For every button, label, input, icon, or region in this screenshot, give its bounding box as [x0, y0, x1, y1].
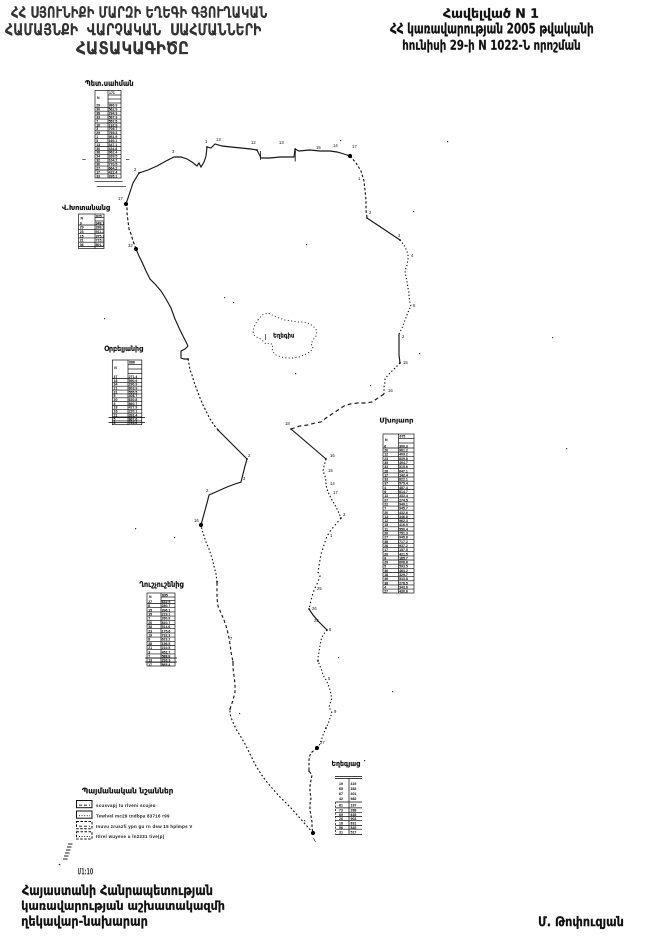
svg-text:Itlrel wuyeve u ln2231 tive(p): Itlrel wuyeve u ln2231 tive(p): [96, 834, 165, 839]
svg-text:25: 25: [317, 586, 322, 591]
svg-text:288: 288: [351, 809, 357, 813]
svg-text:825: 825: [96, 215, 102, 219]
svg-text:32: 32: [128, 243, 133, 248]
svg-text:401: 401: [351, 792, 357, 796]
svg-text:Inuvu zruszfi ypn gu rn dsw 15: Inuvu zruszfi ypn gu rn dsw 15 hplmps V: [96, 824, 193, 829]
svg-text:16: 16: [330, 453, 335, 458]
svg-text:36: 36: [80, 243, 84, 247]
svg-text:17: 17: [352, 144, 357, 149]
svg-text:831: 831: [351, 822, 357, 826]
svg-text:12: 12: [251, 140, 256, 145]
svg-text:395.1: 395.1: [109, 174, 118, 178]
svg-text:17: 17: [333, 490, 338, 495]
svg-text:67: 67: [339, 792, 343, 796]
svg-text:903: 903: [351, 817, 357, 821]
svg-text:845: 845: [351, 826, 357, 830]
svg-text:13: 13: [216, 137, 221, 142]
svg-text:14: 14: [333, 143, 338, 148]
svg-text:171: 171: [109, 91, 115, 95]
svg-text:19: 19: [339, 782, 343, 786]
svg-text:26: 26: [339, 817, 343, 821]
svg-text:16: 16: [194, 518, 199, 523]
svg-text:15: 15: [328, 468, 333, 473]
svg-text:865.4: 865.4: [162, 663, 171, 667]
svg-text:17: 17: [118, 196, 123, 201]
svg-text:197: 197: [351, 804, 357, 808]
svg-text:419: 419: [351, 782, 357, 786]
svg-text:65: 65: [339, 787, 343, 791]
svg-text:8: 8: [114, 421, 116, 425]
svg-text:42: 42: [339, 797, 343, 801]
svg-text:33: 33: [96, 174, 100, 178]
svg-text:14: 14: [330, 481, 335, 486]
svg-text:430.6: 430.6: [399, 590, 408, 594]
svg-text:888: 888: [129, 361, 135, 365]
svg-text:17: 17: [148, 663, 152, 667]
svg-text:675: 675: [400, 435, 406, 439]
svg-text:18: 18: [285, 421, 290, 426]
svg-text:31: 31: [339, 831, 343, 835]
svg-text:81: 81: [339, 804, 343, 808]
svg-text:26: 26: [312, 606, 317, 611]
svg-text:27: 27: [320, 740, 325, 745]
svg-text:895: 895: [162, 594, 168, 598]
svg-text:scusvapj tu rlveni scujeu: scusvapj tu rlveni scujeu: [96, 803, 156, 808]
svg-text:769.6: 769.6: [129, 421, 138, 425]
svg-text:16: 16: [388, 388, 393, 393]
svg-text:801.7: 801.7: [96, 243, 105, 247]
svg-text:56: 56: [339, 826, 343, 830]
svg-text:25: 25: [314, 618, 319, 623]
svg-text:Tewlvel mc29 tndbpa 83716 r99: Tewlvel mc29 tndbpa 83716 r99: [96, 813, 170, 818]
svg-text:18: 18: [339, 822, 343, 826]
svg-text:13: 13: [279, 140, 284, 145]
svg-text:352: 352: [351, 787, 357, 791]
svg-text:27: 27: [384, 590, 388, 594]
svg-text:982: 982: [351, 797, 357, 801]
svg-text:73: 73: [339, 809, 343, 813]
svg-text:15: 15: [403, 360, 408, 365]
svg-text:517: 517: [351, 831, 357, 835]
svg-text:15: 15: [316, 145, 321, 150]
